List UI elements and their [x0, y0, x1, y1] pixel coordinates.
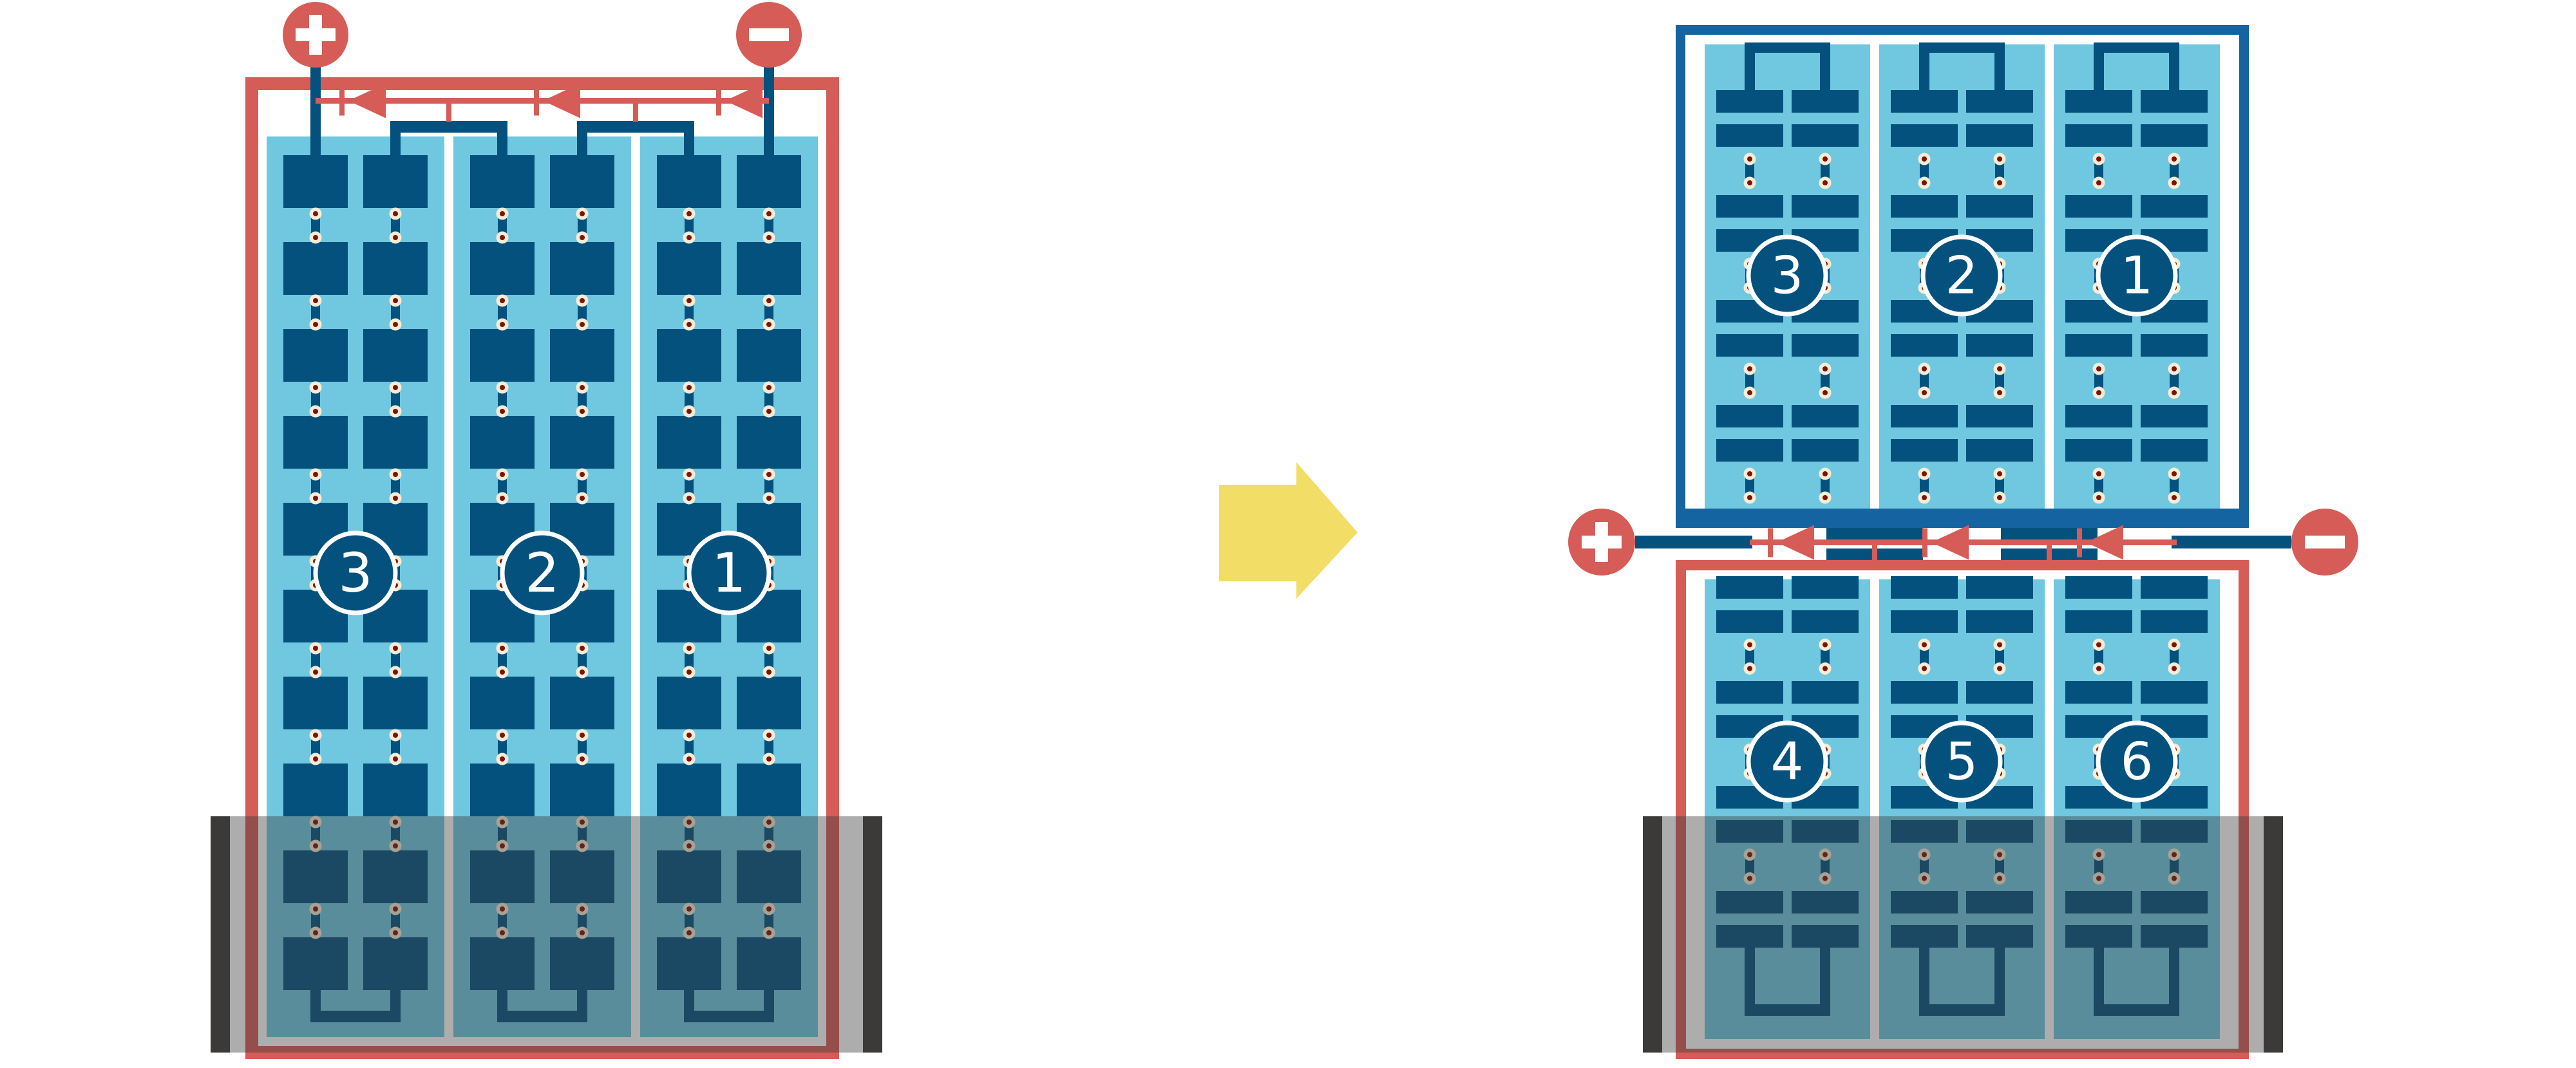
- plate: [1716, 334, 1783, 357]
- plate: [470, 677, 535, 729]
- plate: [363, 764, 428, 816]
- rivet-dot-center-icon: [2096, 666, 2101, 671]
- cell-number-badge: 4: [1748, 723, 1826, 800]
- plate: [1966, 610, 2033, 633]
- rivet-dot-center-icon: [393, 385, 398, 390]
- rivet-dot-center-icon: [687, 670, 692, 675]
- rivet-dot-center-icon: [500, 756, 505, 762]
- plate: [1891, 334, 1958, 357]
- plate: [1716, 195, 1783, 218]
- plate-lug: [683, 208, 696, 244]
- rivet-dot-center-icon: [580, 646, 585, 651]
- rivet-dot-center-icon: [687, 322, 692, 327]
- rivet-dot-center-icon: [687, 235, 692, 240]
- rivet-dot-center-icon: [580, 756, 585, 762]
- plate-lug: [1994, 363, 2006, 399]
- plate: [1716, 124, 1783, 147]
- rivet-dot-center-icon: [313, 756, 318, 762]
- plate-lug: [683, 382, 696, 418]
- cell-connector-strap: [2001, 528, 2098, 539]
- rivet-dot-center-icon: [500, 235, 505, 240]
- rivet-dot-center-icon: [687, 385, 692, 390]
- rivet-dot-center-icon: [1823, 495, 1828, 500]
- plate-lug: [2168, 468, 2181, 504]
- rivet-dot-center-icon: [687, 409, 692, 414]
- rivet-dot-center-icon: [766, 235, 772, 240]
- cell-number: 2: [1946, 246, 1978, 306]
- plate: [1966, 195, 2033, 218]
- plate: [2141, 124, 2208, 147]
- plate: [550, 242, 614, 295]
- plate: [1891, 124, 1958, 147]
- rivet-dot-center-icon: [313, 211, 318, 216]
- plate-lug: [1918, 639, 1931, 675]
- rivet-dot-center-icon: [2096, 180, 2101, 185]
- cell-number: 2: [525, 541, 559, 604]
- plate: [470, 416, 535, 469]
- rivet-dot-center-icon: [580, 409, 585, 414]
- rivet-dot-center-icon: [500, 472, 505, 477]
- plate-lug: [683, 642, 696, 679]
- rivet-dot-center-icon: [2172, 366, 2177, 371]
- plate-lug: [1819, 639, 1832, 675]
- terminal-post: [1635, 536, 1752, 548]
- rivet-dot-center-icon: [2172, 666, 2177, 671]
- rivet-dot-center-icon: [1823, 471, 1828, 476]
- plate: [2065, 195, 2132, 218]
- rivet-dot-center-icon: [2096, 156, 2101, 162]
- rivet-dot-center-icon: [2096, 495, 2101, 500]
- rivet-dot-center-icon: [1747, 666, 1752, 671]
- rivet-dot-center-icon: [500, 496, 505, 501]
- plate: [657, 416, 721, 469]
- plate-lug: [497, 382, 509, 418]
- rivet-dot-center-icon: [1997, 495, 2002, 500]
- cell-number-badge: 3: [316, 533, 395, 613]
- plate: [1716, 90, 1783, 113]
- plate: [1792, 576, 1859, 599]
- plate-lug: [390, 469, 402, 505]
- wire-drop: [633, 104, 638, 122]
- plate: [2065, 405, 2132, 427]
- shape: [577, 133, 587, 156]
- plate: [1966, 90, 2033, 113]
- plate: [1966, 681, 2033, 704]
- plate: [550, 764, 614, 816]
- cell-number-badge: 6: [2098, 723, 2175, 800]
- rivet-dot-center-icon: [1823, 366, 1828, 371]
- shape: [1595, 522, 1608, 562]
- rivet-dot-center-icon: [393, 496, 398, 501]
- plate-lug: [1819, 468, 1832, 504]
- rivet-dot-center-icon: [393, 756, 398, 762]
- rivet-dot-center-icon: [313, 385, 318, 390]
- rivet-dot-center-icon: [2172, 180, 2177, 185]
- left-battery: 321: [211, 2, 882, 1059]
- rivet-dot-center-icon: [1747, 495, 1752, 500]
- plate-lug: [683, 729, 696, 765]
- rivet-dot-center-icon: [1922, 180, 1927, 185]
- terminal-post: [764, 64, 774, 156]
- rivet-dot-center-icon: [393, 670, 398, 675]
- rivet-dot-center-icon: [1922, 642, 1927, 648]
- rivet-dot-center-icon: [313, 670, 318, 675]
- rivet-dot-center-icon: [500, 298, 505, 303]
- plate: [363, 677, 428, 729]
- plate-lug: [2168, 363, 2181, 399]
- rivet-dot-center-icon: [393, 235, 398, 240]
- cell-number: 5: [1946, 732, 1978, 792]
- wire-tick: [339, 87, 345, 116]
- plate: [1891, 195, 1958, 218]
- minus-icon: [2305, 536, 2345, 548]
- rivet-dot-center-icon: [1747, 642, 1752, 648]
- rivet-dot-center-icon: [1997, 180, 2002, 185]
- plate: [550, 329, 614, 382]
- plate: [657, 242, 721, 295]
- plate: [1792, 439, 1859, 462]
- wire-tick: [534, 87, 539, 116]
- plate-lug: [497, 469, 509, 505]
- rivet-dot-center-icon: [2172, 156, 2177, 162]
- rivet-dot-center-icon: [687, 298, 692, 303]
- plate: [2065, 439, 2132, 462]
- shape: [684, 133, 694, 156]
- plate: [1792, 681, 1859, 704]
- cell-number-badge: 3: [1748, 237, 1826, 314]
- plate: [283, 155, 348, 208]
- right-battery: 321456: [1568, 25, 2358, 1059]
- shape: [2094, 42, 2179, 53]
- plate-lug: [1744, 153, 1756, 189]
- plate: [283, 677, 348, 729]
- cell-number-badge: 1: [689, 533, 769, 613]
- plate-lug: [497, 295, 509, 331]
- plate: [1891, 610, 1958, 633]
- plate-lug: [763, 469, 775, 505]
- plate: [657, 329, 721, 382]
- rivet-dot-center-icon: [500, 211, 505, 216]
- shape: [2239, 25, 2249, 528]
- rivet-dot-center-icon: [500, 670, 505, 675]
- tray-end-cap: [1643, 816, 1662, 1053]
- plate-lug: [576, 469, 589, 505]
- shape: [1676, 560, 2249, 570]
- shape: [390, 121, 507, 133]
- plate-lug: [1819, 153, 1832, 189]
- plate: [550, 416, 614, 469]
- rivet-dot-center-icon: [393, 733, 398, 738]
- rivet-dot-center-icon: [766, 385, 772, 390]
- plate: [2065, 334, 2132, 357]
- plate-lug: [683, 295, 696, 331]
- plate: [1966, 576, 2033, 599]
- cell-number: 6: [2121, 732, 2154, 792]
- plate-lug: [576, 382, 589, 418]
- plate-lug: [390, 729, 402, 765]
- terminal-post: [2172, 536, 2291, 548]
- shape: [1676, 509, 2249, 528]
- current-flow-wire: [1750, 525, 2177, 561]
- plate: [2141, 681, 2208, 704]
- rivet-dot-center-icon: [1823, 156, 1828, 162]
- rivet-dot-center-icon: [766, 298, 772, 303]
- rivet-dot-center-icon: [1747, 390, 1752, 395]
- shape: [309, 15, 322, 55]
- rivet-dot-center-icon: [1922, 495, 1927, 500]
- plate: [737, 242, 801, 295]
- plate: [363, 329, 428, 382]
- rivet-dot-center-icon: [1922, 471, 1927, 476]
- rivet-dot-center-icon: [1997, 156, 2002, 162]
- plate-lug: [576, 295, 589, 331]
- plate-lug: [1994, 639, 2006, 675]
- minus-icon: [749, 28, 789, 41]
- plate-lug: [1918, 468, 1931, 504]
- cell-number: 1: [2121, 246, 2154, 306]
- plate: [2065, 681, 2132, 704]
- plate-lug: [1918, 363, 1931, 399]
- plate-lug: [763, 642, 775, 679]
- plate: [550, 155, 614, 208]
- plate: [283, 764, 348, 816]
- plate: [657, 155, 721, 208]
- case-top: [245, 77, 839, 90]
- rivet-dot-center-icon: [766, 646, 772, 651]
- plate: [1716, 405, 1783, 427]
- positive-terminal-icon: [283, 2, 348, 68]
- plate: [2141, 334, 2208, 357]
- plate-lug: [390, 208, 402, 244]
- plate: [1792, 610, 1859, 633]
- plate: [737, 677, 801, 729]
- plate-lug: [497, 642, 509, 679]
- plate: [2065, 124, 2132, 147]
- shape: [1820, 53, 1830, 90]
- rivet-dot-center-icon: [313, 646, 318, 651]
- rivet-dot-center-icon: [1747, 471, 1752, 476]
- plate-lug: [576, 642, 589, 679]
- plate-lug: [2093, 468, 2105, 504]
- rivet-dot-center-icon: [580, 496, 585, 501]
- cell-divider: [2045, 44, 2054, 509]
- rivet-dot-center-icon: [313, 298, 318, 303]
- rivet-dot-center-icon: [766, 322, 772, 327]
- rivet-dot-center-icon: [766, 670, 772, 675]
- rivet-dot-center-icon: [393, 472, 398, 477]
- rivet-dot-center-icon: [1922, 156, 1927, 162]
- plate: [550, 677, 614, 729]
- plate: [363, 242, 428, 295]
- shape: [390, 133, 401, 156]
- plate-lug: [576, 208, 589, 244]
- rivet-dot-center-icon: [766, 733, 772, 738]
- shape: [1745, 53, 1755, 90]
- plate-lug: [390, 295, 402, 331]
- rivet-dot-center-icon: [500, 322, 505, 327]
- rivet-dot-center-icon: [687, 496, 692, 501]
- rivet-dot-center-icon: [2172, 390, 2177, 395]
- rivet-dot-center-icon: [1747, 156, 1752, 162]
- shape: [1676, 25, 1685, 528]
- cell-number: 1: [712, 541, 746, 604]
- rivet-dot-center-icon: [500, 385, 505, 390]
- plate: [657, 677, 721, 729]
- current-arrowhead-icon: [1931, 525, 1969, 560]
- plate: [2065, 576, 2132, 599]
- rivet-dot-center-icon: [1823, 180, 1828, 185]
- shape: [749, 28, 789, 41]
- plate-lug: [390, 642, 402, 679]
- plate: [1792, 195, 1859, 218]
- plate: [1891, 576, 1958, 599]
- plate: [1966, 405, 2033, 427]
- cell-number-badge: 1: [2098, 237, 2175, 314]
- rivet-dot-center-icon: [2172, 642, 2177, 648]
- cell-number-badge: 2: [502, 533, 582, 613]
- plate-lug: [1744, 639, 1756, 675]
- rivet-dot-center-icon: [313, 409, 318, 414]
- rivet-dot-center-icon: [393, 298, 398, 303]
- top-cell-row: 321: [1676, 25, 2249, 528]
- rivet-dot-center-icon: [313, 235, 318, 240]
- plate: [363, 416, 428, 469]
- plate-lug: [1994, 468, 2006, 504]
- cell-number: 4: [1771, 732, 1804, 792]
- plate-lug: [2093, 363, 2105, 399]
- plate: [470, 155, 535, 208]
- plate: [1891, 681, 1958, 704]
- plate: [657, 764, 721, 816]
- shape: [2094, 53, 2104, 90]
- rivet-dot-center-icon: [580, 733, 585, 738]
- plate-lug: [1744, 468, 1756, 504]
- rivet-dot-center-icon: [1747, 180, 1752, 185]
- wire-tick: [1922, 529, 1927, 557]
- plate-lug: [2168, 153, 2181, 189]
- mounting-tray: [211, 816, 882, 1053]
- wire-tick: [716, 87, 721, 116]
- wire-drop: [2047, 545, 2052, 560]
- plate: [2141, 195, 2208, 218]
- plate-lug: [497, 208, 509, 244]
- plate-lug: [1744, 363, 1756, 399]
- rivet-dot-center-icon: [687, 733, 692, 738]
- plate: [737, 416, 801, 469]
- rivet-dot-center-icon: [313, 472, 318, 477]
- right-arrow-icon: [1219, 462, 1358, 599]
- plate-lug: [310, 469, 322, 505]
- wire-drop: [446, 104, 451, 122]
- positive-terminal-icon: [1568, 509, 1635, 576]
- rivet-dot-center-icon: [2096, 471, 2101, 476]
- rivet-dot-center-icon: [580, 298, 585, 303]
- rivet-dot-center-icon: [1823, 642, 1828, 648]
- plate: [1966, 334, 2033, 357]
- plate: [1792, 124, 1859, 147]
- rivet-dot-center-icon: [580, 322, 585, 327]
- plate-lug: [1819, 363, 1832, 399]
- plate-lug: [763, 382, 775, 418]
- plate: [1716, 576, 1783, 599]
- negative-terminal-icon: [736, 2, 802, 68]
- wire-tick: [2077, 529, 2082, 557]
- plate: [737, 155, 801, 208]
- rivet-dot-center-icon: [1997, 666, 2002, 671]
- shape: [1745, 42, 1830, 53]
- plate-lug: [390, 382, 402, 418]
- rivet-dot-center-icon: [1997, 390, 2002, 395]
- tray-end-cap: [863, 816, 882, 1053]
- plate: [2141, 90, 2208, 113]
- shape: [497, 133, 507, 156]
- rivet-dot-center-icon: [580, 211, 585, 216]
- rivet-dot-center-icon: [2096, 390, 2101, 395]
- plate: [283, 416, 348, 469]
- rivet-dot-center-icon: [393, 409, 398, 414]
- terminal-post: [310, 64, 321, 156]
- rivet-dot-center-icon: [580, 670, 585, 675]
- rivet-dot-center-icon: [313, 496, 318, 501]
- rivet-dot-center-icon: [1922, 666, 1927, 671]
- tray-end-cap: [2264, 816, 2283, 1053]
- rivet-dot-center-icon: [1997, 366, 2002, 371]
- tray-end-cap: [211, 816, 230, 1053]
- plate: [737, 329, 801, 382]
- plate: [470, 329, 535, 382]
- plate-lug: [763, 295, 775, 331]
- rivet-dot-center-icon: [313, 322, 318, 327]
- cell-number-badge: 2: [1923, 237, 2000, 314]
- plate: [1792, 334, 1859, 357]
- plate: [1716, 681, 1783, 704]
- plate: [1966, 439, 2033, 462]
- mounting-tray: [1643, 816, 2283, 1053]
- shape: [2305, 536, 2345, 548]
- plate: [1891, 405, 1958, 427]
- plate-lug: [1918, 153, 1931, 189]
- rivet-dot-center-icon: [1922, 366, 1927, 371]
- plate: [363, 155, 428, 208]
- plate-lug: [763, 208, 775, 244]
- rivet-dot-center-icon: [1823, 666, 1828, 671]
- plate: [1716, 610, 1783, 633]
- plate: [1891, 439, 1958, 462]
- cell-connector-strap: [1826, 528, 1923, 539]
- transition-arrow-icon: [1219, 462, 1358, 599]
- plate: [2065, 610, 2132, 633]
- plate-lug: [2093, 639, 2105, 675]
- negative-terminal-icon: [2291, 509, 2358, 576]
- plate-lug: [576, 729, 589, 765]
- plate-lug: [310, 295, 322, 331]
- plate: [2141, 576, 2208, 599]
- rivet-dot-center-icon: [1997, 642, 2002, 648]
- current-arrowhead-icon: [1777, 525, 1814, 560]
- rivet-dot-center-icon: [500, 646, 505, 651]
- diagram-canvas: 321 321456: [0, 0, 2576, 1068]
- plate-lug: [310, 208, 322, 244]
- shape: [1676, 25, 2249, 35]
- plate-lug: [2168, 639, 2181, 675]
- rivet-dot-center-icon: [687, 211, 692, 216]
- wire-drop: [1872, 545, 1877, 560]
- rivet-dot-center-icon: [1823, 390, 1828, 395]
- rivet-dot-center-icon: [500, 409, 505, 414]
- rivet-dot-center-icon: [393, 322, 398, 327]
- shape: [1919, 42, 2005, 53]
- plate: [1792, 405, 1859, 427]
